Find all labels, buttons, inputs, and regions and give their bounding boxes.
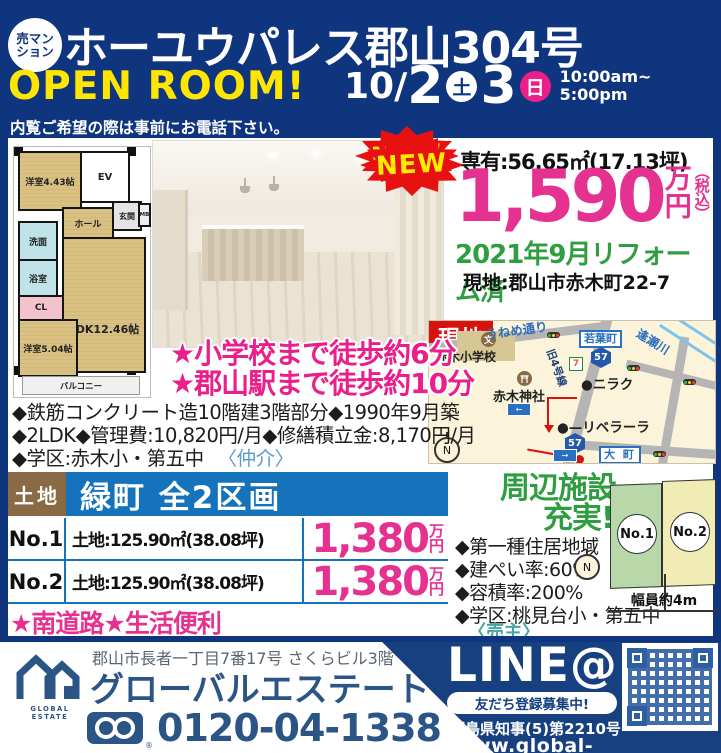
qr-finder xyxy=(627,648,647,668)
traffic-light-icon xyxy=(547,332,560,338)
price-block: 1,590 万 円 （税込） xyxy=(455,162,713,230)
sunday-badge: 日 xyxy=(520,71,551,102)
company-name: グローバルエステート xyxy=(90,662,430,711)
tax-note: （税込） xyxy=(692,164,713,220)
land-table: No.1 土地:125.90㎡(38.08坪) 1,380 万 円 No.2 土… xyxy=(8,518,448,604)
price-value: 1,590 xyxy=(455,162,663,230)
road-width-label: 幅員約4m xyxy=(608,590,720,610)
qr-finder xyxy=(693,648,713,668)
route-line-v xyxy=(547,397,549,427)
lot-1-label: No.1 xyxy=(617,514,657,554)
school-district-text: ◆学区:赤木小・第五中 xyxy=(12,447,204,470)
site-address: 現地:郡山市赤木町22-7 xyxy=(463,268,670,295)
room-west2: 洋室5.04帖 xyxy=(18,319,78,377)
houses-logo-icon xyxy=(14,654,86,700)
qr-finder xyxy=(627,706,647,726)
town-label-omachi: 大 町 xyxy=(599,446,641,464)
date-day1: 2 xyxy=(407,60,443,112)
unit-bottom: 円 xyxy=(429,539,444,554)
phone-number: 0120-04-1338 xyxy=(157,706,441,750)
room-washroom: 洗面 xyxy=(18,221,58,261)
lot-price-unit: 万 円 xyxy=(429,567,444,597)
lot-price: 1,380 万 円 xyxy=(304,561,448,602)
one-way-icon: → xyxy=(553,449,577,462)
room-mb: MB xyxy=(138,203,151,227)
line-cta-pill: 友だち登録募集中! xyxy=(447,692,617,714)
photo-doorway xyxy=(153,190,188,309)
traffic-light-icon xyxy=(653,451,666,457)
lot-2-label: No.2 xyxy=(670,512,710,552)
land-title-bar: 緑町 全2区画 xyxy=(66,472,448,516)
one-way-icon: ← xyxy=(507,403,531,416)
saturday-badge: 土 xyxy=(446,71,477,102)
logo-caption: GLOBAL ESTATE xyxy=(12,705,88,721)
registered-mark: ® xyxy=(145,741,153,750)
land-tag: 土地 xyxy=(8,472,66,516)
qr-code xyxy=(622,643,718,731)
date-day2: 3 xyxy=(480,60,516,112)
route-old-label: 旧4号線 xyxy=(543,347,570,389)
traffic-light-icon xyxy=(683,379,696,385)
compass-icon: N xyxy=(574,554,600,580)
room-ev: EV xyxy=(80,151,130,203)
phone-row: ® 0120-04-1338 xyxy=(86,706,441,750)
store-label-liberala: ●—リベラーラ xyxy=(557,416,650,436)
lot-price: 1,380 万 円 xyxy=(304,518,448,559)
store-label-niraku: ●ニラク xyxy=(581,373,633,393)
table-row: No.2 土地:125.90㎡(38.08坪) 1,380 万 円 xyxy=(8,561,448,604)
lot-number: No.2 xyxy=(8,561,64,602)
lot-diagram: No.1 No.2 幅員約4m xyxy=(608,478,720,628)
lot-size: 土地:125.90㎡(38.08坪) xyxy=(64,518,304,559)
seven-eleven-icon: 7 xyxy=(569,357,583,371)
lot-number: No.1 xyxy=(8,518,64,559)
price-unit-bottom: 円 xyxy=(665,194,692,222)
room-bath: 浴室 xyxy=(18,259,58,297)
freedial-icon xyxy=(86,711,144,745)
time-to: 5:00pm xyxy=(560,85,628,104)
date-month: 10/ xyxy=(344,66,407,107)
photo-kitchen-island xyxy=(202,225,304,281)
traffic-light-icon xyxy=(627,365,640,371)
room-hall: ホール xyxy=(62,207,114,239)
lot-road-line xyxy=(608,610,720,612)
price-unit: 万 円 xyxy=(665,166,692,223)
website-url: www.global-estate33.com xyxy=(455,735,721,753)
route-arrowhead xyxy=(544,425,554,433)
price-unit-top: 万 xyxy=(665,166,692,194)
flyer-page: 売マン ション ホーユウパレス郡山304号 OPEN ROOM! 10/ 2 土… xyxy=(0,0,721,753)
event-date: 10/ 2 土 3 日 10:00am~ 5:00pm xyxy=(344,60,651,112)
badge-line2: ション xyxy=(16,45,54,58)
map-road xyxy=(567,440,716,460)
downlight xyxy=(313,151,320,156)
open-room-label: OPEN ROOM! xyxy=(8,64,306,109)
content-panel: 洋室4.43帖 EV ホール 玄関 MB 洗面 浴室 CL LDK12.46帖 … xyxy=(8,138,713,636)
unit-bottom: 円 xyxy=(429,582,444,597)
torii-icon xyxy=(517,371,532,386)
floorplan: 洋室4.43帖 EV ホール 玄関 MB 洗面 浴室 CL LDK12.46帖 … xyxy=(13,146,151,398)
lot-price-value: 1,380 xyxy=(311,564,428,600)
town-label-wakaba: 若葉町 xyxy=(579,330,622,348)
lot-size: 土地:125.90㎡(38.08坪) xyxy=(64,561,304,602)
room-west1: 洋室4.43帖 xyxy=(18,151,82,211)
lot-price-unit: 万 円 xyxy=(429,524,444,554)
room-closet: CL xyxy=(18,295,64,321)
viewing-notice: 内覧ご希望の際は事前にお電話下さい。 xyxy=(10,116,289,138)
feature-station-walk: ★郡山駅まで徒歩約10分 xyxy=(170,362,474,402)
balcony: バルコニー xyxy=(22,376,140,395)
time-from: 10:00am~ xyxy=(560,67,652,86)
footer: GLOBAL ESTATE 郡山市長者一丁目7番17号 さくらビル3階 グローバ… xyxy=(0,642,721,753)
torii-glyph xyxy=(520,375,529,383)
new-badge-text: NEW xyxy=(376,148,449,182)
land-features: ★南道路★生活便利 xyxy=(10,604,221,640)
route-line-h xyxy=(547,397,577,399)
event-time: 10:00am~ 5:00pm xyxy=(560,68,652,105)
table-row: No.1 土地:125.90㎡(38.08坪) 1,380 万 円 xyxy=(8,518,448,561)
company-logo: GLOBAL ESTATE xyxy=(12,654,88,721)
lot-price-value: 1,380 xyxy=(311,521,428,557)
broker-note: 〈仲介〉 xyxy=(218,447,294,470)
mansion-detail-school-district: ◆学区:赤木小・第五中〈仲介〉 xyxy=(12,442,294,471)
line-at-label: LINE@ xyxy=(447,638,618,693)
